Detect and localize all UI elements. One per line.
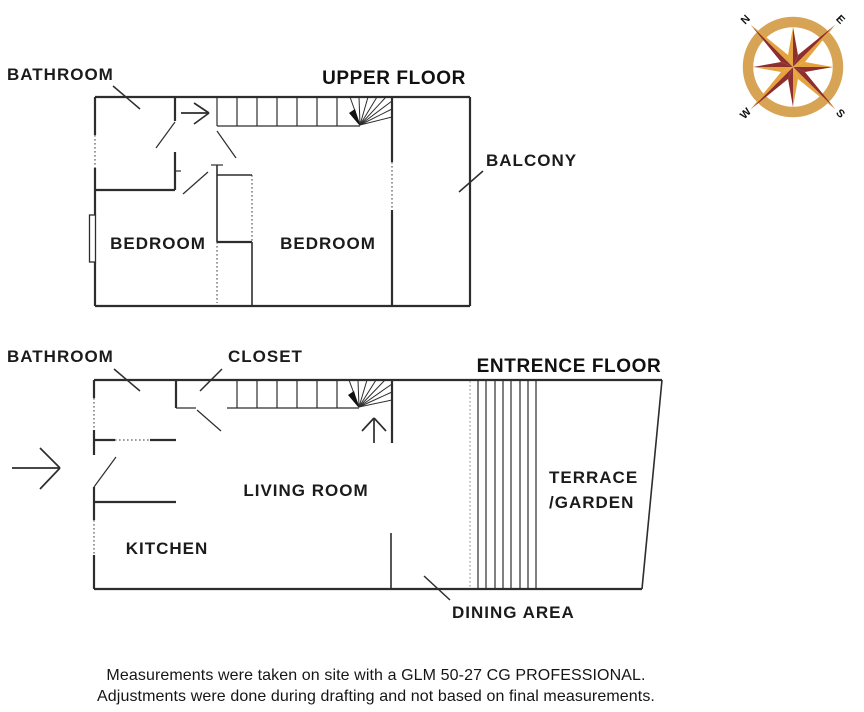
bathroom-upper-walls (95, 97, 181, 190)
closet-label: CLOSET (228, 347, 303, 366)
stairs-up-arrow (362, 418, 386, 443)
deck-louvers (470, 381, 536, 589)
measurement-note-line1: Measurements were taken on site with a G… (0, 665, 752, 686)
living-room-label: LIVING ROOM (243, 481, 368, 500)
bedroom-left-label: BEDROOM (110, 234, 206, 253)
entrance-floor-title: ENTRENCE FLOOR (477, 356, 662, 377)
stair-hub (349, 109, 360, 126)
compass-s: S (833, 107, 847, 121)
stairs-lower (227, 380, 392, 408)
dining-area-label: DINING AREA (452, 603, 575, 622)
bathroom-lower-label: BATHROOM (7, 347, 114, 366)
terrace-label-line2: /GARDEN (549, 493, 634, 512)
entrance-floor-plan: BATHROOM CLOSET ENTRENCE FLOOR LIVING RO… (7, 347, 662, 622)
balcony-label: BALCONY (486, 151, 577, 170)
door-leaf (156, 122, 175, 148)
door-leaf (197, 410, 221, 431)
terrace-slanted-edge (642, 380, 662, 589)
floor-plan-page: BATHROOM UPPER FLOOR BALCONY BEDROOM BED… (0, 0, 864, 712)
upper-floor-title: UPPER FLOOR (322, 68, 466, 89)
stairs-upper (217, 97, 392, 126)
window-sill (90, 215, 96, 262)
measurement-note: Measurements were taken on site with a G… (0, 665, 752, 707)
bedroom-right-label: BEDROOM (280, 234, 376, 253)
entry-door-leaf (94, 457, 116, 487)
upper-entry-arrow (181, 103, 209, 124)
door-leaf (183, 172, 208, 194)
floor-plan-canvas: BATHROOM UPPER FLOOR BALCONY BEDROOM BED… (0, 0, 864, 712)
bathroom-upper-label: BATHROOM (7, 65, 114, 84)
door-leaf (217, 131, 236, 158)
kitchen-label: KITCHEN (126, 539, 209, 558)
measurement-note-line2: Adjustments were done during drafting an… (0, 686, 752, 707)
stair-hub (348, 391, 359, 408)
entry-arrow (12, 448, 60, 489)
terrace-label-line1: TERRACE (549, 468, 638, 487)
upper-outer-walls (90, 97, 471, 306)
closet-column-upper (211, 165, 252, 306)
upper-floor-plan: BATHROOM UPPER FLOOR BALCONY BEDROOM BED… (7, 65, 577, 306)
compass-rose-icon: N E S W (708, 0, 864, 152)
